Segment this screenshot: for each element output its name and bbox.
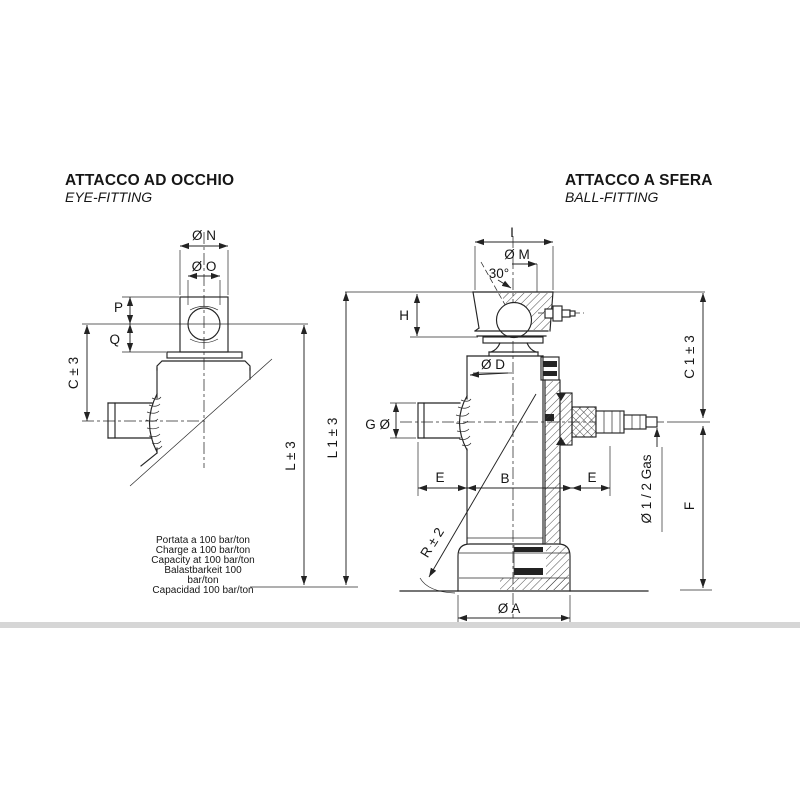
dim-e-left-label: E — [435, 470, 444, 485]
ball — [497, 303, 532, 338]
dim-d: Ø D — [470, 357, 512, 375]
dim-q-label: Q — [109, 332, 120, 347]
cylinder-body — [467, 356, 543, 544]
dim-c1: C 1 ± 3 — [668, 293, 710, 422]
dim-h-label: H — [399, 308, 409, 323]
technical-drawing: ATTACCO AD OCCHIO EYE-FITTING ATTACCO A … — [0, 0, 800, 800]
dim-e-right: E — [572, 446, 610, 496]
dim-q: Q — [109, 324, 166, 352]
dim-l-label: L ± 3 — [283, 441, 298, 470]
dim-r-label: R ± 2 — [417, 525, 447, 560]
outer-wall-hatch — [545, 381, 572, 543]
dim-gas: Ø 1 / 2 Gas — [639, 428, 662, 532]
right-view-header: ATTACCO A SFERA BALL-FITTING — [565, 172, 713, 205]
break-line — [130, 359, 272, 486]
dim-g-label: G Ø — [365, 417, 390, 432]
dim-b-label: B — [500, 471, 509, 486]
catalog-page: ATTACCO AD OCCHIO EYE-FITTING ATTACCO A … — [0, 0, 800, 800]
dim-g: G Ø — [365, 403, 416, 438]
dim-l1: L 1 ± 3 — [325, 292, 346, 585]
dim-n-label: Ø N — [192, 228, 216, 243]
dim-f: F — [680, 426, 712, 590]
dim-angle: 30° — [489, 266, 511, 288]
left-view-header: ATTACCO AD OCCHIO EYE-FITTING — [65, 172, 234, 205]
left-side-port — [108, 403, 152, 438]
dim-c1-label: C 1 ± 3 — [682, 335, 697, 378]
dim-p-label: P — [114, 300, 123, 315]
dim-gas-label: Ø 1 / 2 Gas — [639, 454, 654, 523]
page-divider — [0, 622, 800, 628]
base — [420, 544, 570, 593]
dim-f-label: F — [682, 502, 697, 510]
dim-d-label: Ø D — [481, 357, 505, 372]
ball-fitting-drawing: I Ø M 30° H Ø D G Ø — [325, 225, 712, 624]
dim-c: C ± 3 — [66, 325, 87, 421]
dim-e-right-label: E — [587, 470, 596, 485]
capacity-note: Portata a 100 bar/ton Charge a 100 bar/t… — [151, 535, 254, 596]
dim-a-label: Ø A — [498, 601, 521, 616]
dim-o-label: Ø O — [192, 259, 217, 274]
dim-h: H — [399, 294, 478, 337]
dim-a: Ø A — [458, 595, 570, 624]
dim-l1-label: L 1 ± 3 — [325, 418, 340, 459]
dim-m-label: Ø M — [504, 247, 530, 262]
dim-i-label: I — [510, 225, 514, 240]
left-view-subtitle: EYE-FITTING — [65, 189, 152, 205]
note-line-6: Capacidad 100 bar/ton — [152, 585, 253, 596]
eye-bushing — [167, 352, 242, 358]
eye-fitting-drawing: Ø N Ø O P Q C ± 3 L ± 3 — [66, 228, 358, 596]
right-view-side-port — [418, 403, 460, 438]
dim-p: P — [114, 297, 179, 324]
right-view-title: ATTACCO A SFERA — [565, 172, 713, 189]
right-weld-bead — [456, 396, 471, 450]
dim-c-label: C ± 3 — [66, 357, 81, 389]
right-view-subtitle: BALL-FITTING — [565, 189, 658, 205]
dim-e-left: E — [418, 442, 467, 496]
body-top — [157, 361, 250, 370]
outlet-fitting — [572, 407, 657, 437]
left-view-title: ATTACCO AD OCCHIO — [65, 172, 234, 189]
dim-angle-label: 30° — [489, 266, 509, 281]
